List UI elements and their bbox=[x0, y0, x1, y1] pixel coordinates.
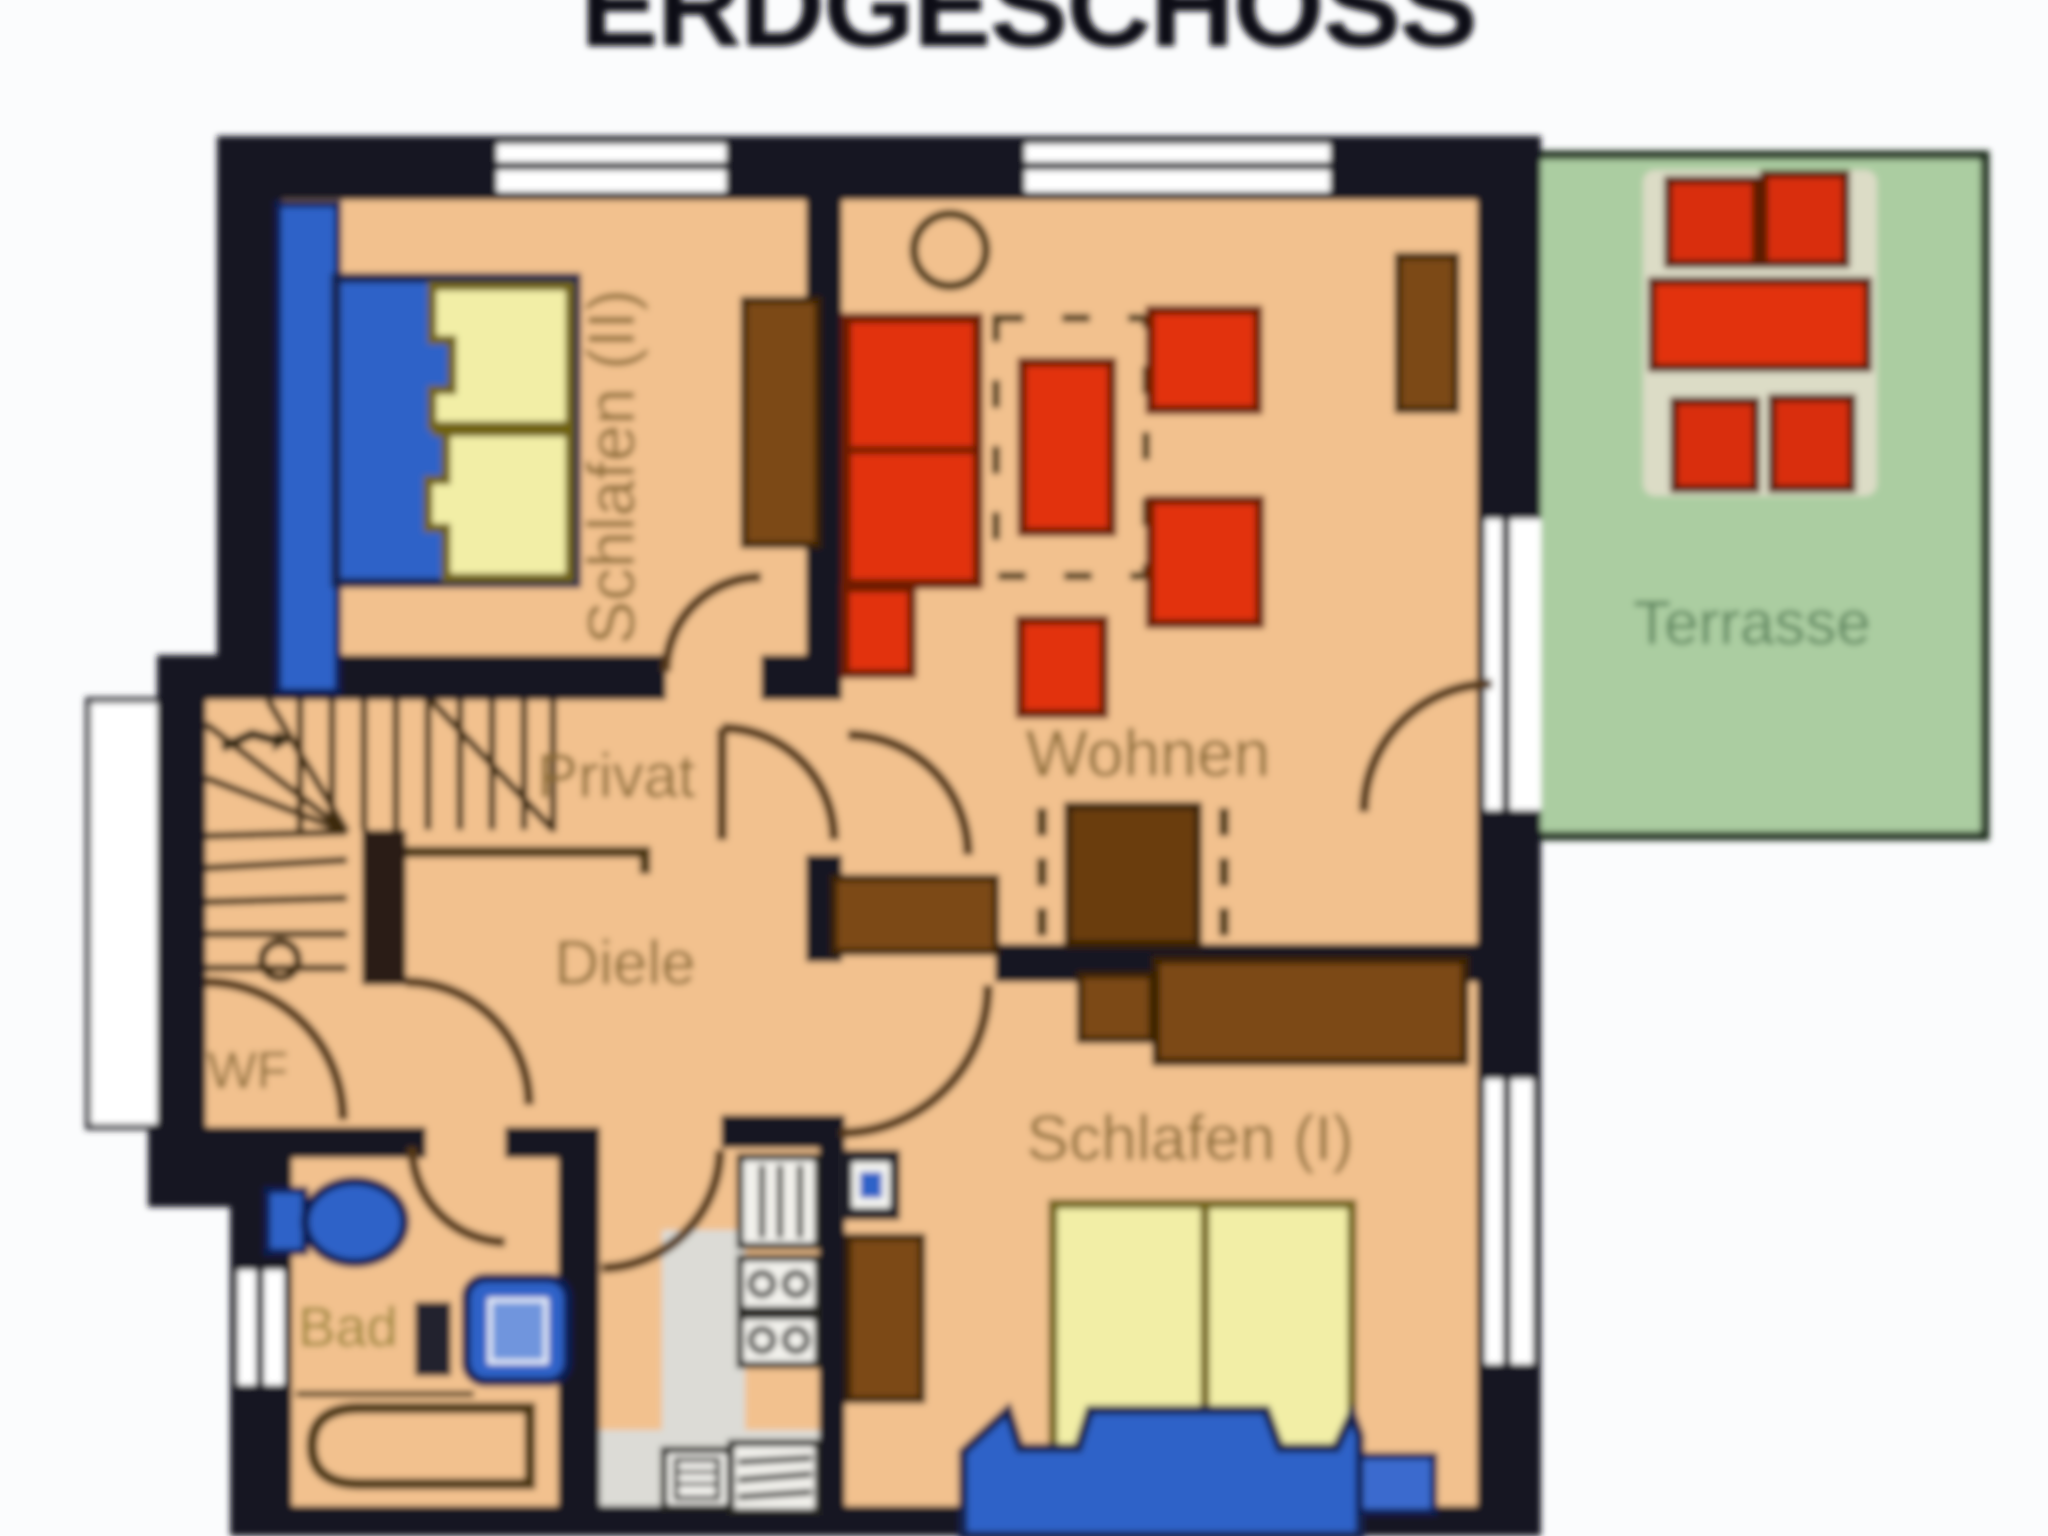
svg-text:ERDGESCHOSS: ERDGESCHOSS bbox=[580, 0, 1476, 72]
svg-text:Schlafen (II): Schlafen (II) bbox=[574, 289, 648, 645]
svg-text:WF: WF bbox=[208, 1042, 289, 1100]
svg-text:Wohnen: Wohnen bbox=[1026, 716, 1271, 790]
svg-text:Schlafen (I): Schlafen (I) bbox=[1026, 1102, 1353, 1174]
svg-text:Diele: Diele bbox=[554, 929, 695, 998]
svg-text:Terrasse: Terrasse bbox=[1633, 589, 1871, 658]
svg-text:Privat: Privat bbox=[537, 742, 695, 811]
svg-text:Bad: Bad bbox=[298, 1295, 398, 1358]
